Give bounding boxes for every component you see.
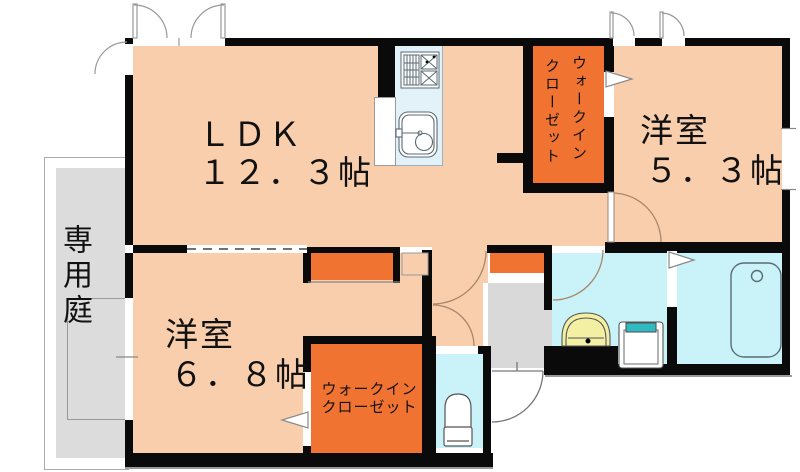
- door-leaf: [610, 12, 613, 38]
- floor-plan: ＬＤＫ １２．３帖 洋室 ５．３帖 洋室 ６．８帖 ウォークイン クローゼット …: [0, 0, 800, 472]
- door-swing-arc: [134, 5, 167, 38]
- door-swing-arc: [433, 305, 474, 346]
- door-swing-arc: [433, 251, 486, 304]
- door-swing-arc: [612, 193, 661, 242]
- room-size-ldk: １２．３帖: [198, 146, 373, 194]
- door-swing-arc: [611, 13, 634, 36]
- column-box: [402, 253, 428, 275]
- toilet-icon: [444, 394, 472, 446]
- wic1-label-line1: ウォークイン: [568, 55, 589, 163]
- wic1-label-line2: クローゼット: [541, 58, 562, 166]
- door-leaf: [133, 4, 137, 38]
- door-swing-arc: [95, 42, 127, 74]
- washbasin-icon: [562, 313, 610, 346]
- wic2-label-line1: ウォークイン: [311, 381, 428, 399]
- room-size-western-2: ６．８帖: [170, 348, 310, 396]
- room-size-western-1: ５．３帖: [645, 144, 785, 192]
- washing-machine-pan-icon: [619, 322, 663, 368]
- entry-arrow-icon: [606, 71, 632, 87]
- bathtub-icon: [731, 263, 781, 357]
- entry-arrow-icon: [282, 412, 308, 428]
- wic2-label-line2: クローゼット: [311, 399, 428, 417]
- stove-icon: [401, 52, 439, 88]
- garden-label: 専用庭: [52, 224, 96, 329]
- door-swing-arc: [191, 5, 224, 38]
- door-leaf: [608, 192, 614, 242]
- door-leaf: [221, 4, 225, 38]
- door-swing-arc: [662, 13, 684, 36]
- entry-arrow-icon: [669, 252, 694, 268]
- door-swing-arc: [492, 371, 543, 422]
- sink-icon: [396, 112, 437, 157]
- door-swing-arc: [553, 250, 603, 300]
- door-leaf: [660, 12, 663, 38]
